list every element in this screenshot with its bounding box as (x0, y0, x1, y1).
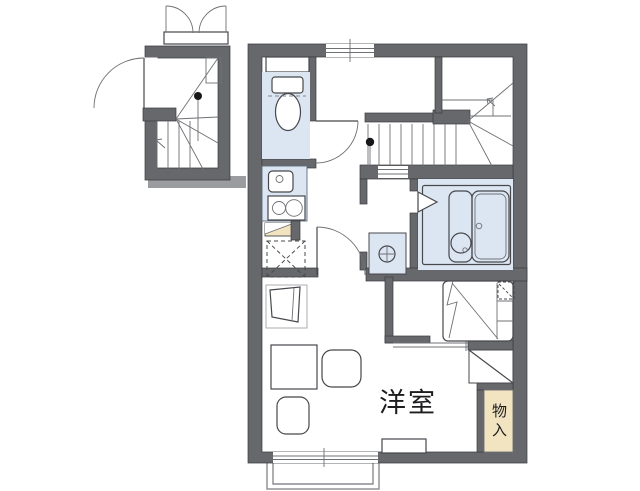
chair (277, 397, 309, 434)
bathroom (418, 179, 513, 270)
stair-start-post (366, 138, 374, 146)
chair (322, 350, 361, 387)
stairwell-window (378, 166, 408, 178)
shoe-cabinet-icon (164, 6, 228, 44)
bed (443, 281, 514, 341)
storage-label: 物入 (485, 393, 512, 450)
floor-plan: 洋室 物入 (0, 0, 640, 491)
toilet-cabinet (266, 57, 309, 72)
gas-stove (268, 196, 305, 220)
kitchen-sink (269, 171, 294, 192)
washing-machine-area (369, 233, 406, 274)
kitchen (262, 166, 307, 277)
balcony (267, 462, 379, 489)
living-room-furniture (266, 285, 426, 453)
entrance-opening (144, 58, 158, 111)
window-top (326, 39, 374, 62)
floor-plan-drawing (0, 0, 640, 491)
desk (271, 345, 317, 389)
door-swings (316, 121, 365, 275)
tv-stand (270, 287, 300, 322)
entrance-door-swing (94, 58, 144, 108)
western-room-label: 洋室 (379, 381, 437, 420)
entrance-stairwell (94, 6, 246, 188)
low-board (382, 439, 426, 453)
counter-shelf (265, 223, 293, 236)
toilet-room (262, 57, 310, 159)
window-bottom (273, 448, 378, 467)
